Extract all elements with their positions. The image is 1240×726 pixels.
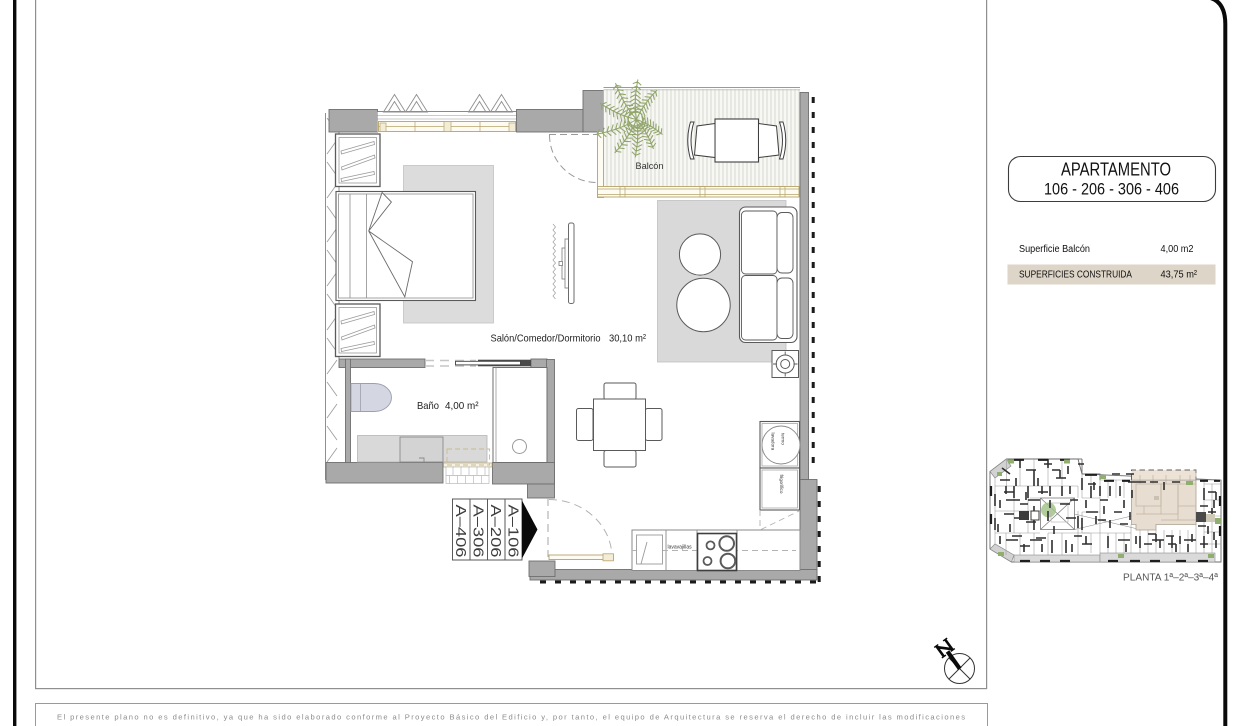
svg-text:A–106: A–106	[504, 505, 521, 558]
svg-text:43,75 m²: 43,75 m²	[1161, 270, 1198, 281]
svg-text:SUPERFICIES CONSTRUIDA: SUPERFICIES CONSTRUIDA	[1019, 270, 1132, 281]
svg-text:Balcón: Balcón	[636, 161, 664, 172]
svg-text:Superficie Balcón: Superficie Balcón	[1019, 244, 1090, 255]
svg-text:lavavajillas: lavavajillas	[668, 545, 693, 551]
svg-text:4,00 m²: 4,00 m²	[445, 400, 479, 412]
svg-text:Salón/Comedor/Dormitorio: Salón/Comedor/Dormitorio	[491, 333, 601, 345]
svg-text:APARTAMENTO: APARTAMENTO	[1061, 160, 1171, 180]
svg-text:A–306: A–306	[469, 505, 486, 558]
svg-text:termo: termo	[781, 433, 786, 445]
svg-text:PLANTA 1ª–2ª–3ª–4ª: PLANTA 1ª–2ª–3ª–4ª	[1123, 573, 1218, 584]
svg-text:A–206: A–206	[487, 505, 504, 558]
svg-text:4,00 m2: 4,00 m2	[1161, 244, 1194, 255]
svg-text:A–406: A–406	[452, 505, 469, 558]
svg-text:frigorífico: frigorífico	[779, 475, 784, 494]
svg-text:30,10 m²: 30,10 m²	[609, 333, 646, 345]
svg-text:Baño: Baño	[417, 400, 439, 412]
svg-text:El presente plano no es d: El presente plano no es definitivo, ya q…	[57, 713, 965, 722]
svg-text:lavadora: lavadora	[771, 433, 776, 451]
svg-text:106 - 206 - 306 - 406: 106 - 206 - 306 - 406	[1044, 181, 1179, 199]
